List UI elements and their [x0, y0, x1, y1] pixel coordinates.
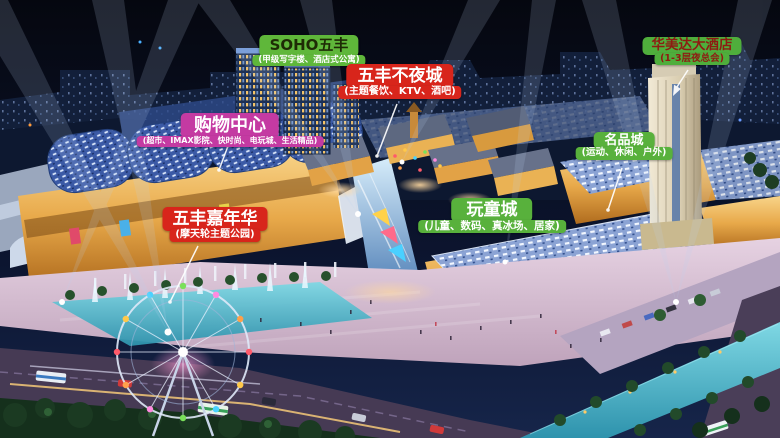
- label-shopping-mall: 购物中心 (超市、IMAX影院、快时尚、电玩城、生活精品): [137, 113, 324, 147]
- label-soho-title: SOHO五丰: [260, 35, 359, 57]
- label-kids-city-subtitle: (儿童、数码、真冰场、居家): [418, 220, 566, 233]
- label-soho: SOHO五丰 (甲级写字楼、酒店式公寓): [252, 35, 365, 66]
- label-hotel-subtitle: (1-3层夜总会): [654, 53, 730, 65]
- label-night-city-title: 五丰不夜城: [346, 64, 453, 88]
- label-carnival-subtitle: (摩天轮主题公园): [169, 229, 260, 242]
- label-kids-city-title: 玩童城: [451, 198, 532, 222]
- label-carnival-title: 五丰嘉年华: [163, 207, 268, 231]
- label-night-city-subtitle: (主题餐饮、KTV、酒吧): [338, 86, 461, 99]
- aerial-rendering: SOHO五丰 (甲级写字楼、酒店式公寓) 五丰不夜城 (主题餐饮、KTV、酒吧)…: [0, 0, 780, 438]
- label-shopping-mall-subtitle: (超市、IMAX影院、快时尚、电玩城、生活精品): [137, 136, 324, 146]
- label-kids-city: 玩童城 (儿童、数码、真冰场、居家): [418, 198, 566, 233]
- label-brand-city-subtitle: (运动、休闲、户外): [576, 147, 673, 159]
- label-hotel: 华美达大酒店 (1-3层夜总会): [643, 37, 742, 65]
- label-brand-city: 名品城 (运动、休闲、户外): [576, 132, 673, 160]
- label-night-city: 五丰不夜城 (主题餐饮、KTV、酒吧): [338, 64, 461, 99]
- label-shopping-mall-title: 购物中心: [181, 113, 279, 138]
- label-carnival: 五丰嘉年华 (摩天轮主题公园): [163, 207, 268, 242]
